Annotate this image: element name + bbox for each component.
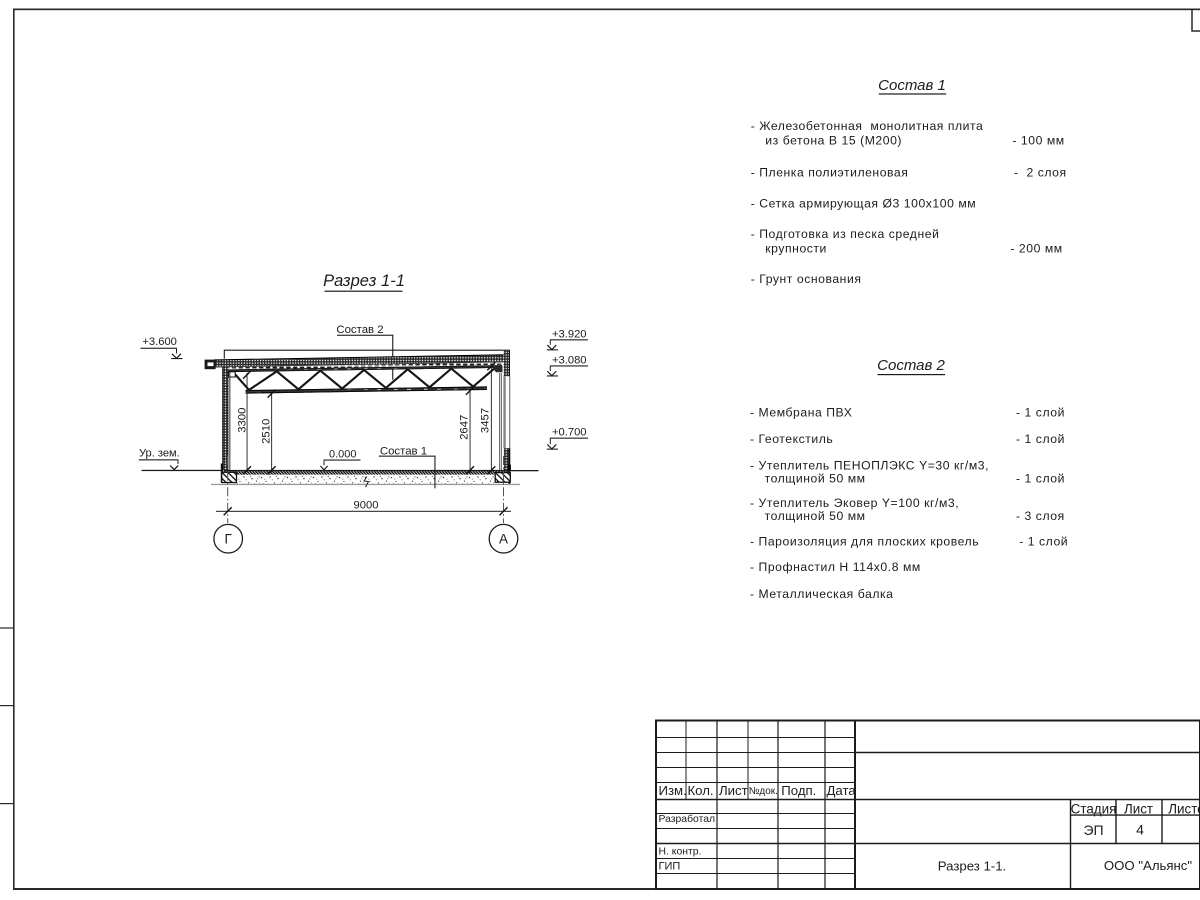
svg-text:- 1 слой: - 1 слой bbox=[1016, 406, 1065, 420]
svg-text:+0.700: +0.700 bbox=[552, 426, 587, 438]
svg-text:Листов: Листов bbox=[1168, 802, 1200, 817]
svg-text:Г: Г bbox=[225, 532, 233, 547]
svg-text:- Железобетонная монолитная п: - Железобетонная монолитная плита bbox=[751, 119, 984, 133]
svg-text:Разработал: Разработал bbox=[659, 813, 716, 825]
svg-text:- Пленка полиэтиленовая: - Пленка полиэтиленовая bbox=[751, 165, 909, 179]
svg-text:- Мембрана ПВХ: - Мембрана ПВХ bbox=[750, 406, 852, 420]
svg-text:3300: 3300 bbox=[236, 408, 248, 433]
svg-text:Разрез 1-1.: Разрез 1-1. bbox=[938, 859, 1006, 874]
svg-text:3457: 3457 bbox=[479, 408, 491, 433]
svg-text:0.000: 0.000 bbox=[329, 449, 357, 461]
svg-text:Стадия: Стадия bbox=[1071, 802, 1117, 817]
svg-text:Разрез 1-1: Разрез 1-1 bbox=[323, 272, 405, 290]
svg-text:Кол.: Кол. bbox=[688, 783, 714, 798]
svg-text:Ур. зем.: Ур. зем. bbox=[139, 448, 180, 460]
svg-text:Дата: Дата bbox=[827, 783, 857, 798]
svg-text:- Грунт основания: - Грунт основания bbox=[751, 272, 862, 286]
svg-text:- Сетка армирующая Ø3 100х100: - Сетка армирующая Ø3 100х100 мм bbox=[751, 197, 977, 211]
svg-text:- Утеплитель Эковер Y=100 кг/м: - Утеплитель Эковер Y=100 кг/м3, bbox=[750, 496, 959, 510]
svg-text:- 1 слой: - 1 слой bbox=[1016, 432, 1065, 446]
svg-text:- 3 слоя: - 3 слоя bbox=[1016, 509, 1065, 523]
svg-text:+3.080: +3.080 bbox=[552, 354, 587, 366]
svg-text:Состав 1: Состав 1 bbox=[380, 445, 427, 457]
svg-text:№док.: №док. bbox=[749, 786, 778, 797]
svg-text:2647: 2647 bbox=[459, 415, 471, 440]
svg-text:- 100 мм: - 100 мм bbox=[1012, 134, 1064, 148]
svg-text:9000: 9000 bbox=[354, 499, 379, 511]
svg-text:+3.920: +3.920 bbox=[552, 328, 587, 340]
svg-text:А: А bbox=[499, 532, 508, 547]
svg-text:- Профнастил Н 114х0.8 мм: - Профнастил Н 114х0.8 мм bbox=[750, 560, 921, 574]
svg-text:- 1 слой: - 1 слой bbox=[1019, 535, 1068, 549]
svg-text:Лист: Лист bbox=[719, 783, 748, 798]
svg-text:Состав 2: Состав 2 bbox=[877, 357, 945, 374]
svg-text:4: 4 bbox=[1136, 822, 1144, 838]
svg-text:ГИП: ГИП bbox=[659, 861, 681, 873]
svg-text:- Металлическая балка: - Металлическая балка bbox=[750, 587, 893, 601]
svg-text:- Геотекстиль: - Геотекстиль bbox=[750, 432, 833, 446]
svg-text:- 2 слоя: - 2 слоя bbox=[1014, 165, 1067, 179]
svg-text:из бетона В 15 (М200): из бетона В 15 (М200) bbox=[765, 134, 902, 148]
svg-text:- Пароизоляция для плоских кро: - Пароизоляция для плоских кровель bbox=[750, 535, 979, 549]
svg-text:Изм.: Изм. bbox=[659, 783, 687, 798]
svg-text:толщиной 50 мм: толщиной 50 мм bbox=[765, 509, 866, 523]
svg-text:- 1 слой: - 1 слой bbox=[1016, 472, 1065, 486]
svg-text:Лист: Лист bbox=[1124, 802, 1153, 817]
svg-text:толщиной 50 мм: толщиной 50 мм bbox=[765, 472, 866, 486]
svg-text:+3.600: +3.600 bbox=[142, 336, 177, 348]
svg-text:крупности: крупности bbox=[765, 241, 827, 255]
svg-text:Подп.: Подп. bbox=[781, 783, 816, 798]
svg-text:- Утеплитель ПЕНОПЛЭКС Y=30 кг: - Утеплитель ПЕНОПЛЭКС Y=30 кг/м3, bbox=[750, 459, 989, 473]
svg-text:Состав 2: Состав 2 bbox=[336, 324, 383, 336]
svg-text:- 200 мм: - 200 мм bbox=[1010, 241, 1062, 255]
svg-text:- Подготовка из песка средней: - Подготовка из песка средней bbox=[751, 227, 940, 241]
svg-text:2510: 2510 bbox=[260, 419, 272, 444]
svg-text:Состав 1: Состав 1 bbox=[878, 77, 946, 94]
svg-text:ЭП: ЭП bbox=[1083, 822, 1103, 838]
svg-text:ООО "Альянс": ООО "Альянс" bbox=[1104, 858, 1192, 873]
svg-text:Н. контр.: Н. контр. bbox=[659, 847, 702, 858]
